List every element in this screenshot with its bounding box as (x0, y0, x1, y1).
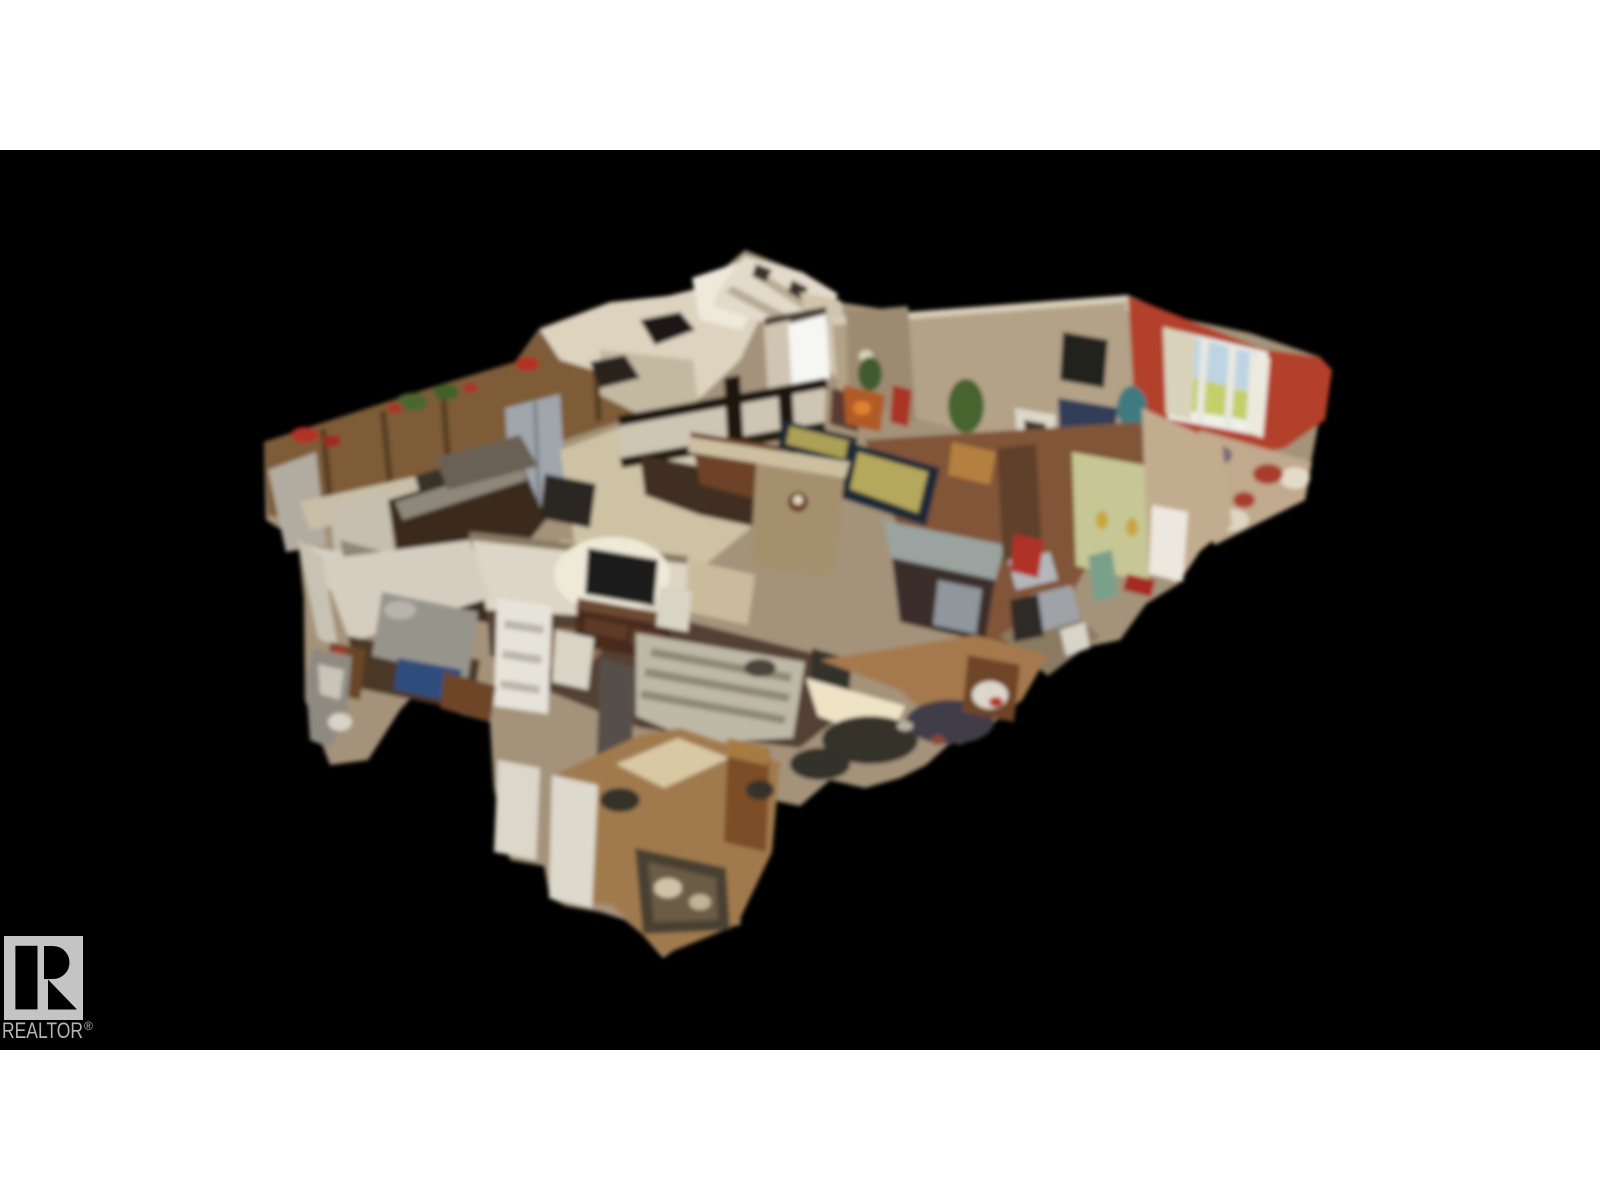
svg-text:REALTOR: REALTOR (2, 1018, 83, 1043)
svg-text:®: ® (84, 1019, 93, 1033)
